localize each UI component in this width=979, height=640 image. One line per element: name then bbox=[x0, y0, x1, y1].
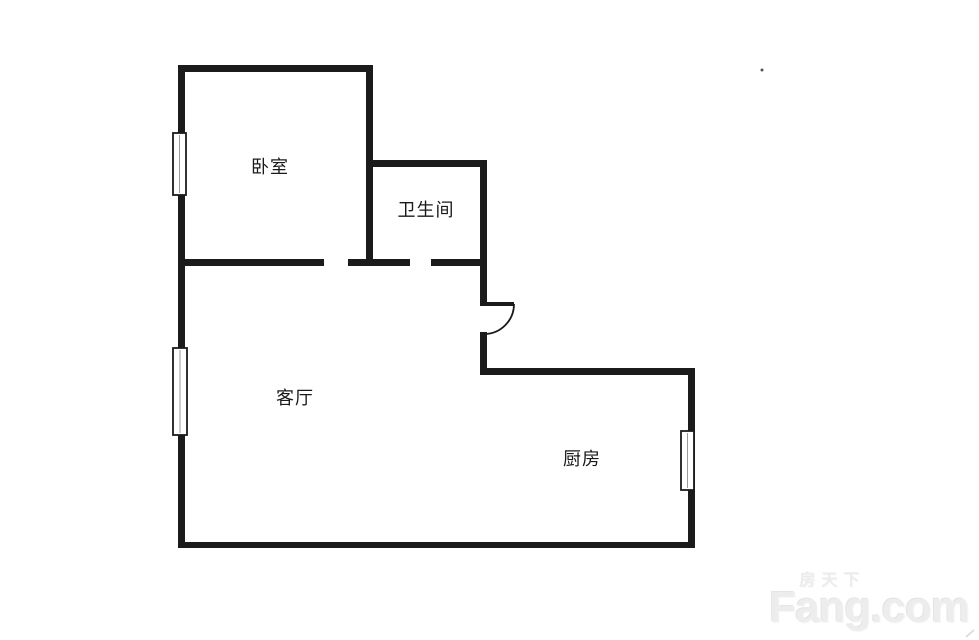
wall-bathroom-top bbox=[366, 160, 487, 167]
wall-divider-right-segment bbox=[431, 259, 487, 266]
room-label-bedroom: 卧室 bbox=[251, 157, 289, 177]
wall-bedroom-top bbox=[178, 65, 373, 72]
watermark-en-text: Fang.com bbox=[769, 586, 969, 630]
door-arc-icon bbox=[484, 304, 514, 334]
speck-artifact bbox=[761, 69, 764, 72]
floorplan-drawing: 卧室 卫生间 客厅 厨房 bbox=[0, 0, 979, 640]
door-symbol bbox=[480, 302, 514, 334]
room-label-kitchen: 厨房 bbox=[563, 449, 601, 469]
floorplan-page: 卧室 卫生间 客厅 厨房 房天下 Fang.com bbox=[0, 0, 979, 640]
windows bbox=[173, 133, 694, 490]
wall-bottom bbox=[178, 542, 695, 548]
wall-kitchen-top bbox=[480, 368, 695, 375]
room-labels: 卧室 卫生间 客厅 厨房 bbox=[251, 157, 601, 469]
bedroom-window-icon bbox=[173, 133, 186, 195]
kitchen-window-icon bbox=[681, 431, 694, 490]
watermark: 房天下 Fang.com bbox=[769, 573, 969, 630]
door-leaf bbox=[480, 302, 514, 306]
room-label-living-room: 客厅 bbox=[276, 388, 314, 408]
wall-divider-left-segment bbox=[178, 259, 324, 266]
room-label-bathroom: 卫生间 bbox=[398, 200, 455, 220]
wall-bathroom-right bbox=[480, 160, 487, 306]
wall-divider-middle-segment bbox=[348, 259, 410, 266]
walls bbox=[178, 65, 695, 548]
living-room-window-icon bbox=[173, 348, 187, 435]
